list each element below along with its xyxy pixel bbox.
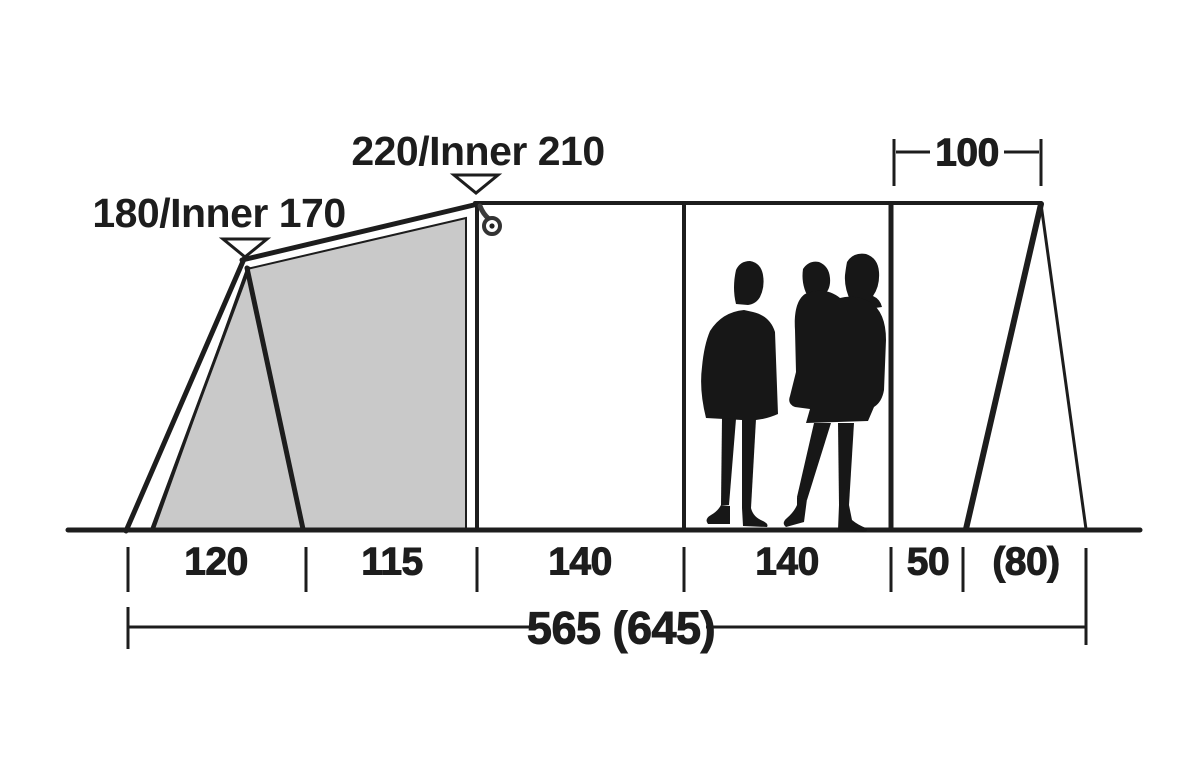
adult-with-child-silhouette — [784, 254, 886, 532]
porch-width-label: 100 — [935, 132, 999, 175]
rear-guy-line — [1041, 204, 1086, 529]
tent-structure — [68, 203, 1140, 531]
rear-pole-line — [966, 204, 1041, 529]
lantern-hook-icon — [480, 206, 500, 234]
section-label: (80) — [992, 541, 1059, 584]
total-length-dimension: 565 (645) — [128, 603, 1085, 654]
porch-width-dimension: 100 — [894, 132, 1041, 187]
tent-dimension-diagram: 100 180/Inner 170 220/Inner 210 120 115 … — [0, 0, 1200, 758]
height-marker-main-icon — [454, 175, 498, 193]
woman-silhouette — [701, 261, 778, 527]
section-label: 140 — [548, 541, 612, 584]
main-peak-height-label: 220/Inner 210 — [351, 128, 604, 174]
people-silhouette — [701, 254, 886, 532]
diagram-canvas: 100 180/Inner 170 220/Inner 210 120 115 … — [0, 0, 1200, 758]
section-label: 140 — [755, 541, 819, 584]
section-label: 115 — [361, 541, 422, 584]
front-peak-height-label: 180/Inner 170 — [92, 190, 345, 236]
inner-tent-panel — [154, 218, 466, 529]
section-label: 50 — [907, 541, 949, 584]
total-length-label: 565 (645) — [527, 603, 715, 654]
section-label: 120 — [184, 541, 248, 584]
